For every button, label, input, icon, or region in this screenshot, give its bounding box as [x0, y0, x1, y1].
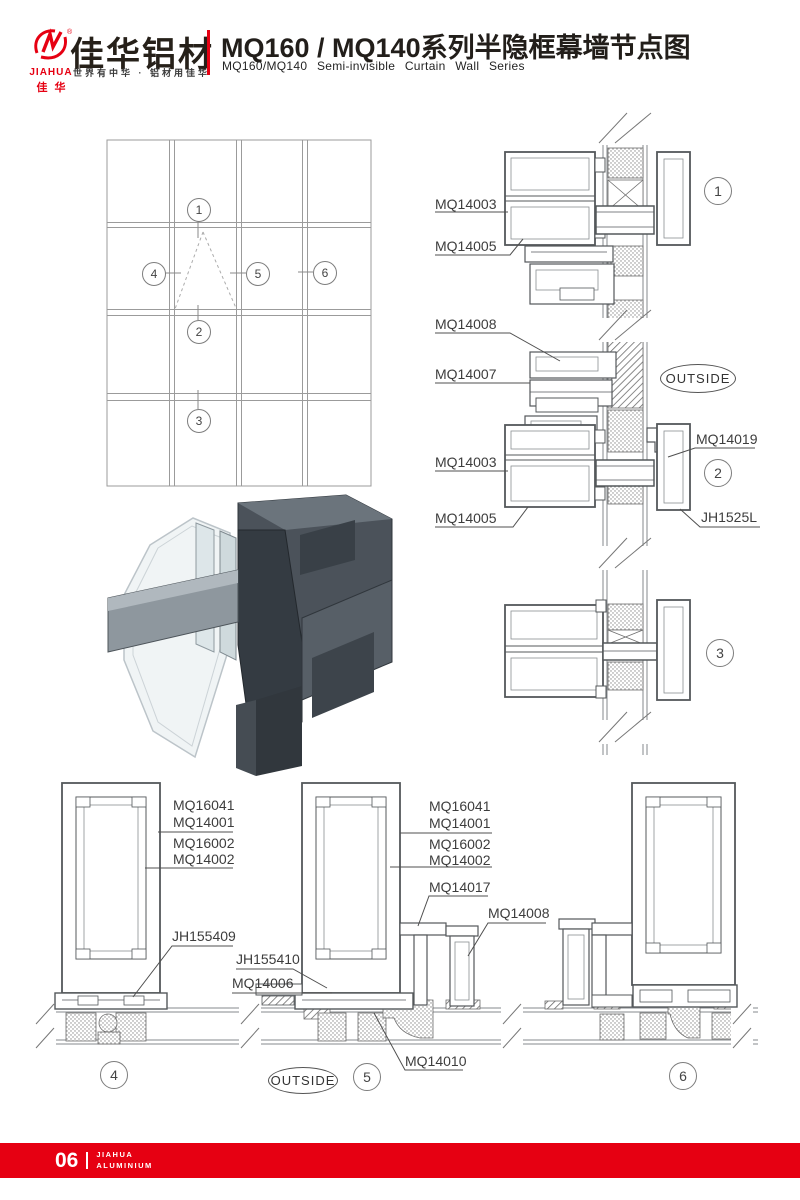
part-label-jh155409: JH155409	[172, 929, 236, 944]
section-callout-1: 1	[704, 177, 732, 205]
part-label-mq16002-d5: MQ16002	[429, 837, 490, 852]
horizontal-sections	[34, 783, 758, 1070]
part-label-mq14019: MQ14019	[696, 432, 757, 447]
section-detail-1	[505, 152, 690, 304]
part-label-mq14008-2: MQ14008	[488, 906, 549, 921]
elevation-callout-6: 6	[313, 261, 337, 285]
vent-opening-symbol	[175, 232, 236, 309]
footer-brand: JIAHUA ALUMINIUM	[96, 1150, 152, 1170]
elevation-callout-1: 1	[187, 198, 211, 222]
footer-brand-line2: ALUMINIUM	[96, 1161, 152, 1171]
part-label-mq14008: MQ14008	[435, 317, 496, 332]
part-label-mq14006: MQ14006	[232, 976, 293, 991]
section-callout-2: 2	[704, 459, 732, 487]
elevation-callout-3: 3	[187, 409, 211, 433]
part-label-jh155410: JH155410	[236, 952, 300, 967]
footer-band: 06 JIAHUA ALUMINIUM	[0, 1143, 800, 1178]
part-label-mq16041-d4: MQ16041	[173, 798, 234, 813]
elevation-callout-5: 5	[246, 262, 270, 286]
section-detail-6	[559, 783, 737, 1007]
catalog-page: ® JIAHUA 佳华 佳华铝材 世界有中华 · 铝材用佳华 MQ160 / M…	[0, 0, 800, 1200]
technical-drawing	[0, 0, 800, 1200]
part-label-mq14002-d5: MQ14002	[429, 853, 490, 868]
elevation-diagram	[107, 140, 371, 486]
section-callout-4: 4	[100, 1061, 128, 1089]
section-callout-3: 3	[706, 639, 734, 667]
part-label-mq14010: MQ14010	[405, 1054, 466, 1069]
part-label-mq14001-d5: MQ14001	[429, 816, 490, 831]
outside-tag-horizontal: OUTSIDE	[268, 1067, 338, 1094]
section-detail-3	[505, 600, 690, 700]
footer-brand-line1: JIAHUA	[96, 1150, 152, 1160]
profile-3d-render	[108, 495, 392, 776]
page-number: 06	[55, 1150, 78, 1171]
part-label-mq14002-d4: MQ14002	[173, 852, 234, 867]
section-callout-5: 5	[353, 1063, 381, 1091]
outside-tag-vertical: OUTSIDE	[660, 364, 736, 393]
part-label-mq14001-d4: MQ14001	[173, 815, 234, 830]
part-label-jh1525l: JH1525L	[701, 510, 757, 525]
part-label-mq14003: MQ14003	[435, 197, 496, 212]
elevation-callout-4: 4	[142, 262, 166, 286]
part-label-mq14003-2: MQ14003	[435, 455, 496, 470]
part-label-mq16041-d5: MQ16041	[429, 799, 490, 814]
part-label-mq14017: MQ14017	[429, 880, 490, 895]
part-label-mq16002-d4: MQ16002	[173, 836, 234, 851]
part-label-mq14005: MQ14005	[435, 239, 496, 254]
part-label-mq14005-2: MQ14005	[435, 511, 496, 526]
part-label-mq14007: MQ14007	[435, 367, 496, 382]
section-callout-6: 6	[669, 1062, 697, 1090]
elevation-callout-2: 2	[187, 320, 211, 344]
footer-divider	[86, 1152, 88, 1169]
